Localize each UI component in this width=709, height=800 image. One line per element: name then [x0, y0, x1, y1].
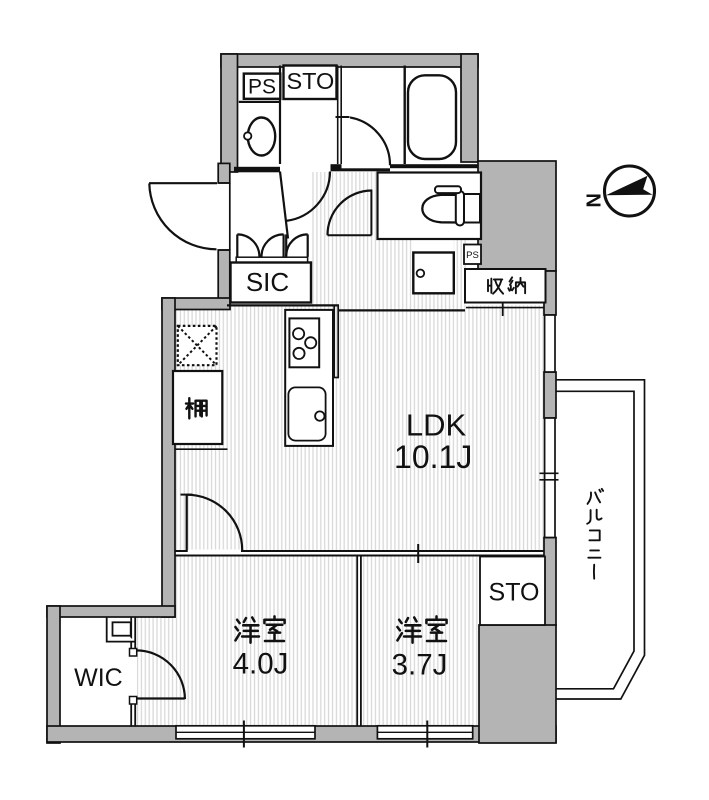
svg-text:LDK: LDK: [406, 408, 467, 443]
svg-text:3.7J: 3.7J: [392, 649, 448, 682]
svg-text:PS: PS: [248, 76, 276, 99]
svg-text:PS: PS: [466, 250, 479, 261]
svg-text:STO: STO: [286, 68, 334, 94]
svg-text:N: N: [582, 193, 604, 207]
svg-text:WIC: WIC: [74, 664, 123, 692]
svg-text:SIC: SIC: [246, 267, 289, 297]
svg-text:STO: STO: [489, 579, 540, 607]
svg-text:10.1J: 10.1J: [394, 439, 472, 475]
svg-text:4.0J: 4.0J: [233, 648, 289, 681]
